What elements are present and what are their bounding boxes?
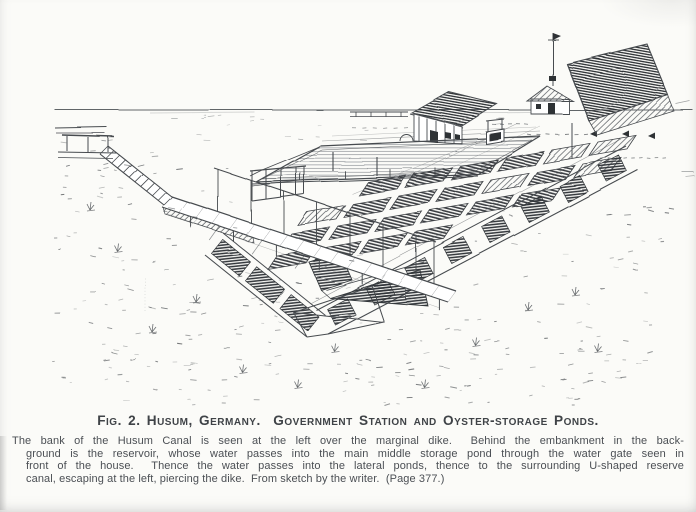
- scan-edge-artifact: [0, 436, 7, 510]
- figure-caption: The bank of the Husum Canal is seen at t…: [12, 435, 684, 485]
- caption-line: canal, escaping at the left, piercing th…: [12, 473, 684, 486]
- caption-line: ground is the reservoir, whose water pas…: [12, 448, 684, 461]
- figure-title: Fig. 2. Husum, Germany. Government Stati…: [12, 413, 684, 428]
- scanned-book-page: Fig. 2. Husum, Germany. Government Stati…: [0, 0, 696, 512]
- figure-caption-block: Fig. 2. Husum, Germany. Government Stati…: [12, 413, 684, 485]
- station-buildings: [400, 33, 690, 158]
- engraving-illustration: [0, 0, 696, 412]
- caption-line: front of the house. Thence the water pas…: [12, 460, 684, 473]
- scan-corner-smudge: [600, 0, 696, 28]
- caption-line: The bank of the Husum Canal is seen at t…: [12, 435, 684, 448]
